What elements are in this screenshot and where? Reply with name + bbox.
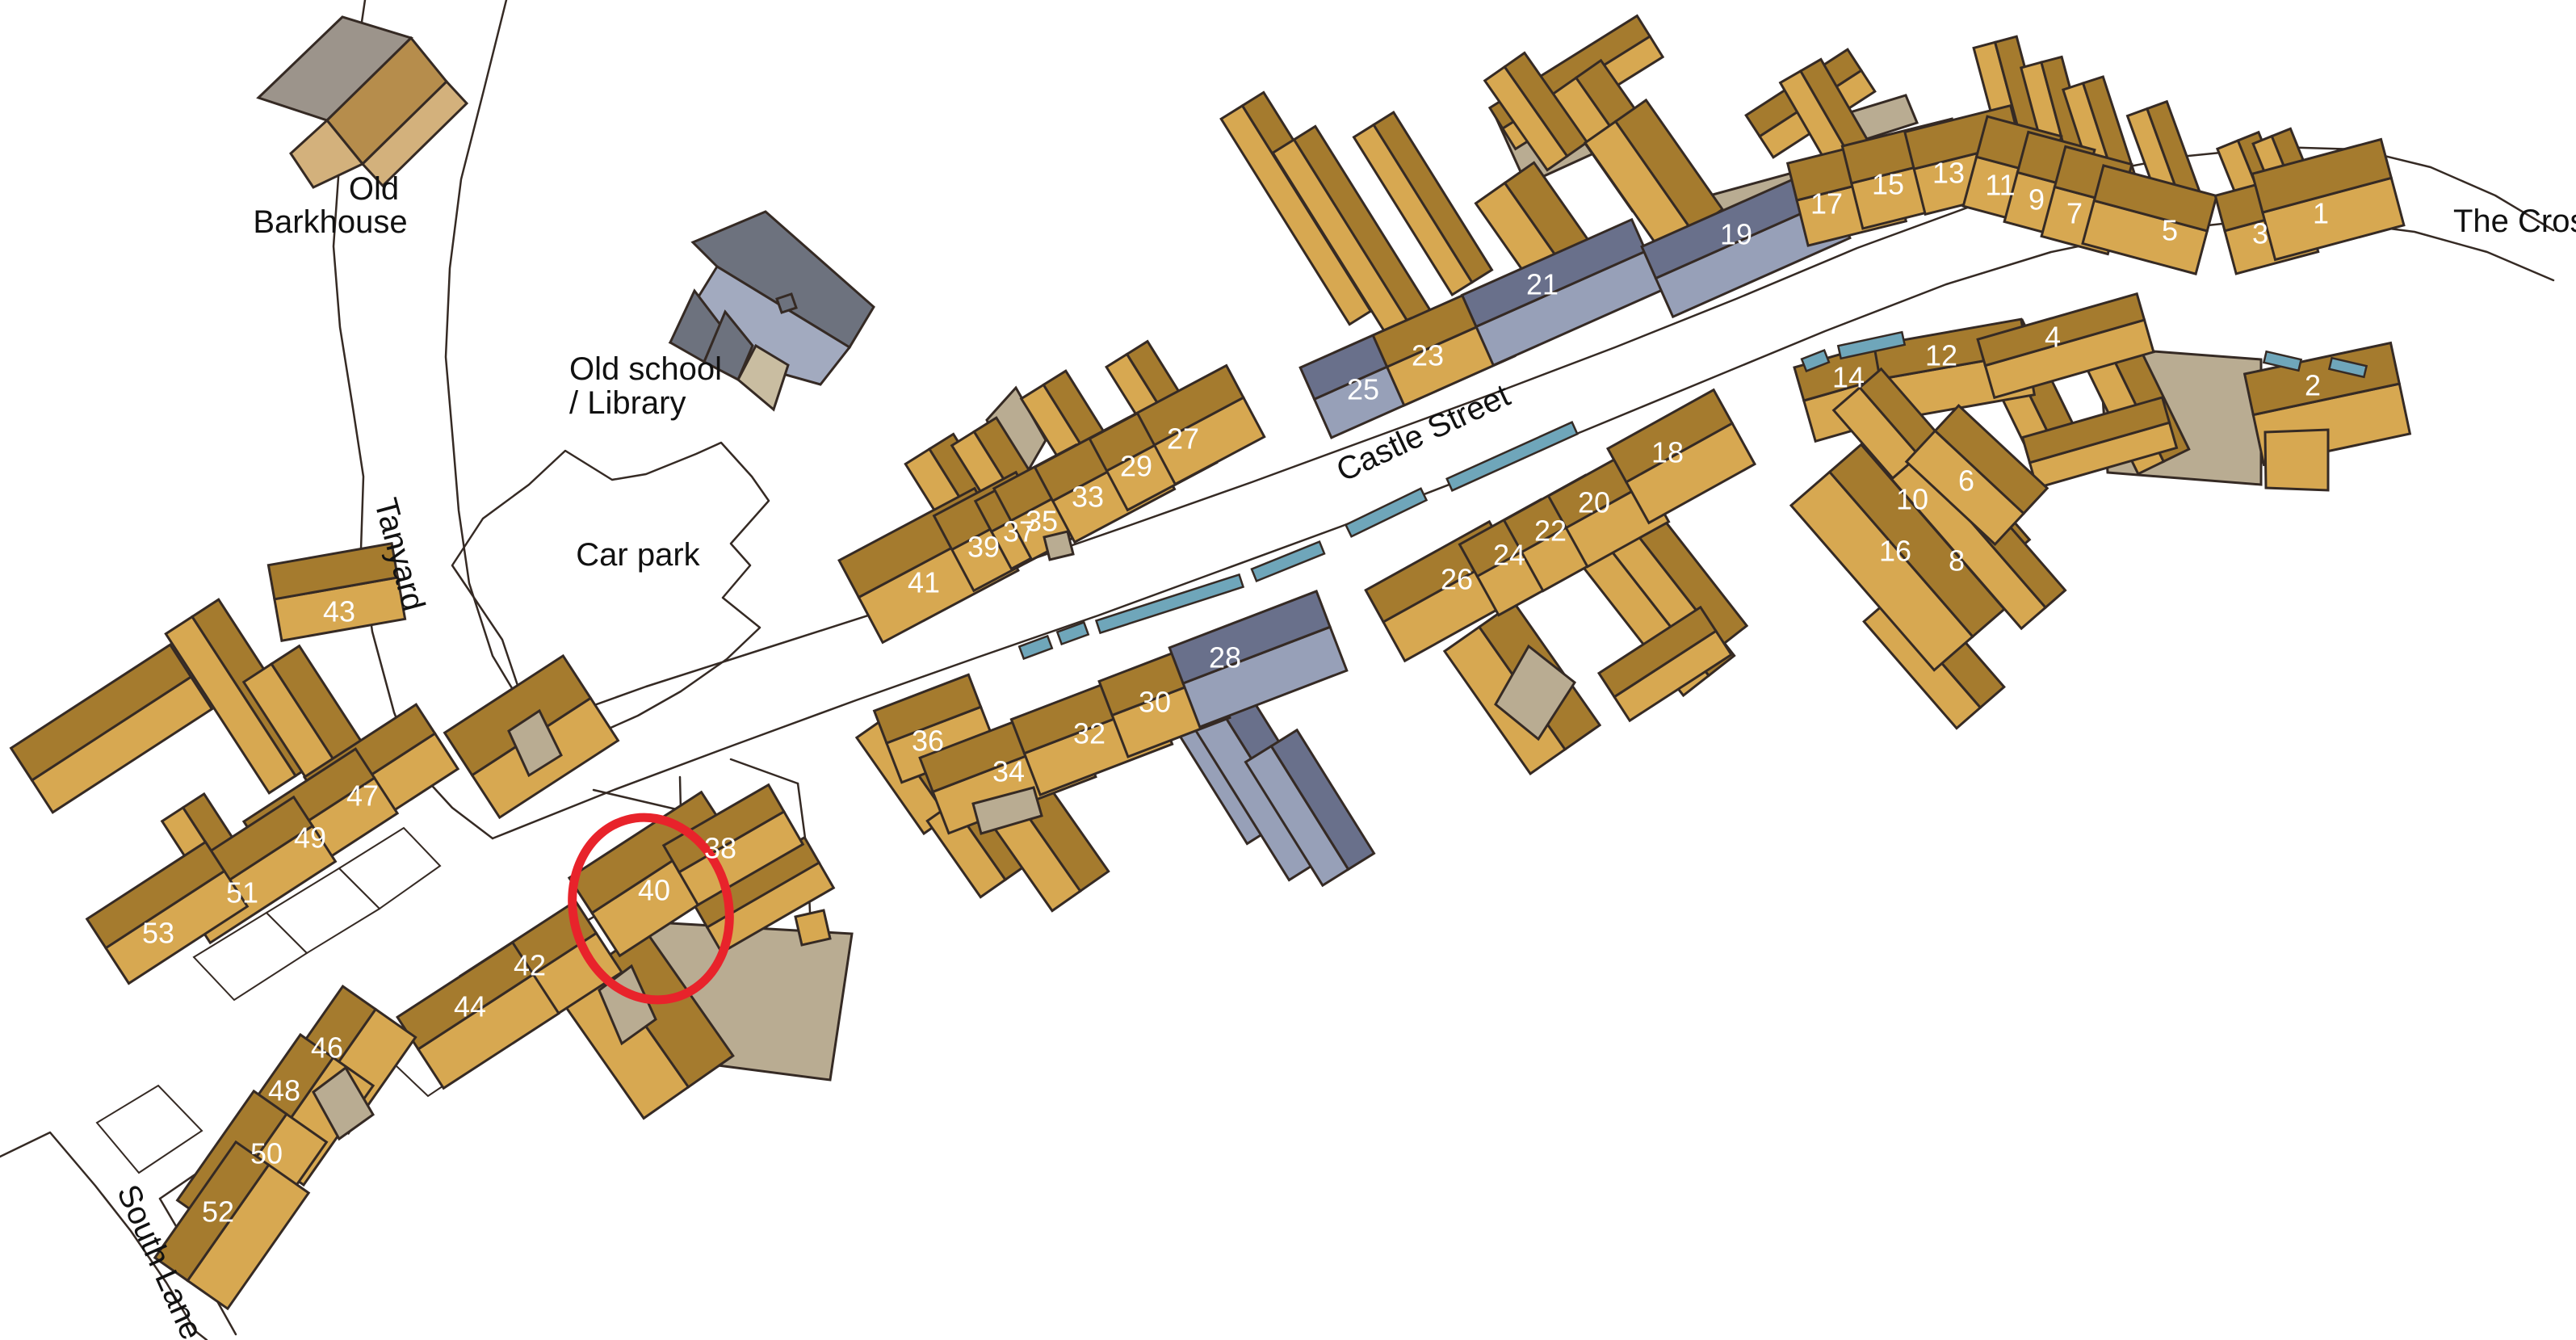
building-number-7: 7: [2066, 197, 2083, 230]
building-number-13: 13: [1932, 157, 1965, 190]
building-number-43: 43: [323, 595, 355, 628]
buildings-layer: [87, 106, 2410, 1309]
building-number-6: 6: [1958, 464, 1974, 498]
building-number-50: 50: [250, 1137, 283, 1170]
building-number-36: 36: [912, 725, 944, 758]
water-strip: [1252, 542, 1324, 582]
label-the-cross: The Cross: [2453, 204, 2576, 239]
square-38: [795, 910, 830, 945]
building-number-12: 12: [1925, 339, 1957, 372]
building-number-21: 21: [1526, 268, 1559, 301]
building-number-9: 9: [2028, 183, 2045, 216]
building-number-26: 26: [1441, 563, 1473, 596]
building-number-3: 3: [2252, 217, 2268, 250]
map-stage: OldBarkhouseOld school/ LibraryCar parkC…: [0, 0, 2576, 1340]
building-number-8: 8: [1949, 544, 1965, 578]
building-number-28: 28: [1209, 641, 1241, 674]
road-plot-line-38a: [731, 759, 798, 783]
building-number-11: 11: [1985, 169, 2015, 202]
building-number-47: 47: [346, 779, 379, 813]
building-number-2: 2: [2305, 369, 2321, 402]
water-strip: [1057, 623, 1088, 645]
building-number-5: 5: [2162, 214, 2178, 247]
building-number-15: 15: [1872, 168, 1904, 201]
building-number-53: 53: [142, 917, 174, 950]
water-strip: [1019, 636, 1052, 659]
building-number-35: 35: [1026, 505, 1058, 538]
water-strip: [1346, 489, 1427, 536]
building-number-49: 49: [294, 821, 326, 855]
building-number-16: 16: [1879, 535, 1911, 568]
building-number-10: 10: [1896, 483, 1928, 516]
ext-2: [2265, 430, 2328, 490]
road-plot-line-40a: [594, 790, 680, 810]
building-number-18: 18: [1651, 436, 1684, 469]
outbuilding: [11, 645, 212, 813]
plot-outline: [97, 1086, 202, 1173]
building-number-25: 25: [1347, 373, 1379, 406]
building-number-4: 4: [2045, 321, 2061, 354]
building-number-19: 19: [1720, 218, 1752, 251]
building-number-44: 44: [454, 990, 486, 1023]
building-number-38: 38: [704, 832, 736, 865]
building-number-51: 51: [226, 876, 258, 909]
building-number-29: 29: [1120, 450, 1152, 483]
label-library: / Library: [569, 385, 686, 421]
building-number-40: 40: [638, 874, 670, 907]
building-number-14: 14: [1832, 361, 1865, 394]
school-chimney: [777, 294, 796, 313]
building-number-41: 41: [908, 566, 940, 599]
building-number-39: 39: [967, 531, 1000, 564]
building-number-22: 22: [1534, 515, 1567, 548]
label-barkhouse: Barkhouse: [253, 204, 407, 240]
building-number-48: 48: [268, 1074, 300, 1107]
road-car-park-boundary: [452, 443, 769, 732]
building-number-1: 1: [2313, 197, 2329, 230]
water-strip: [1097, 574, 1244, 632]
building-number-30: 30: [1139, 686, 1171, 719]
building-number-42: 42: [514, 949, 546, 982]
building-number-33: 33: [1072, 481, 1104, 514]
building-number-20: 20: [1578, 486, 1610, 519]
building-number-17: 17: [1810, 187, 1843, 221]
building-number-24: 24: [1493, 539, 1525, 572]
label-old: Old: [349, 171, 399, 207]
building-number-32: 32: [1073, 717, 1105, 750]
castle-street-map: OldBarkhouseOld school/ LibraryCar parkC…: [0, 0, 2576, 1340]
building-number-23: 23: [1412, 339, 1444, 372]
label-car-park: Car park: [576, 537, 700, 573]
building-number-52: 52: [202, 1195, 234, 1229]
building-number-46: 46: [311, 1031, 343, 1065]
building-number-27: 27: [1167, 422, 1199, 456]
label-old-school: Old school: [569, 351, 722, 387]
building-number-34: 34: [992, 755, 1025, 788]
